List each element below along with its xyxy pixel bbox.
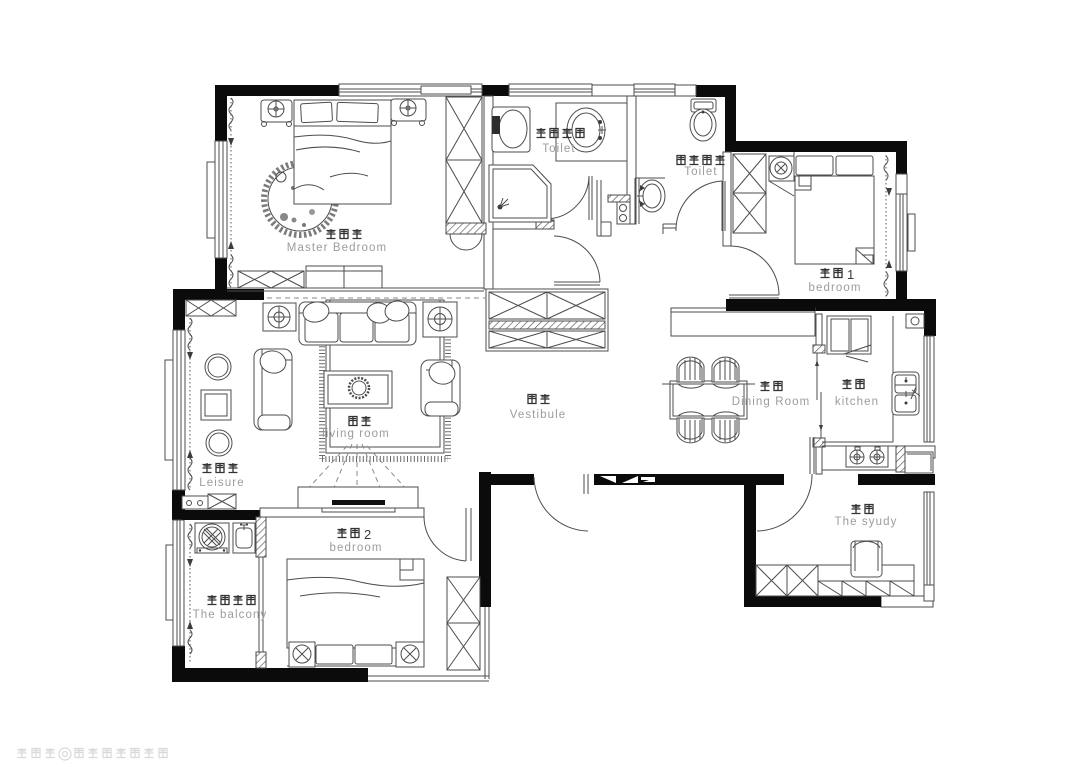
svg-text:Master Bedroom: Master Bedroom [287,242,387,254]
svg-text:bedroom: bedroom [329,542,382,554]
svg-text:Vestibule: Vestibule [510,409,567,421]
svg-text:The balcony: The balcony [193,609,268,621]
svg-text:Leisure: Leisure [199,477,244,489]
svg-text:kitchen: kitchen [835,396,879,408]
svg-text:Toilet: Toilet [684,166,717,178]
svg-text:1: 1 [847,267,854,282]
svg-text:Toilet: Toilet [542,143,575,155]
svg-text:2: 2 [364,527,371,542]
svg-text:bedroom: bedroom [808,282,861,294]
svg-text:Dining Room: Dining Room [732,396,811,408]
svg-text:The syudy: The syudy [835,516,898,528]
svg-text:living room: living room [322,428,390,440]
